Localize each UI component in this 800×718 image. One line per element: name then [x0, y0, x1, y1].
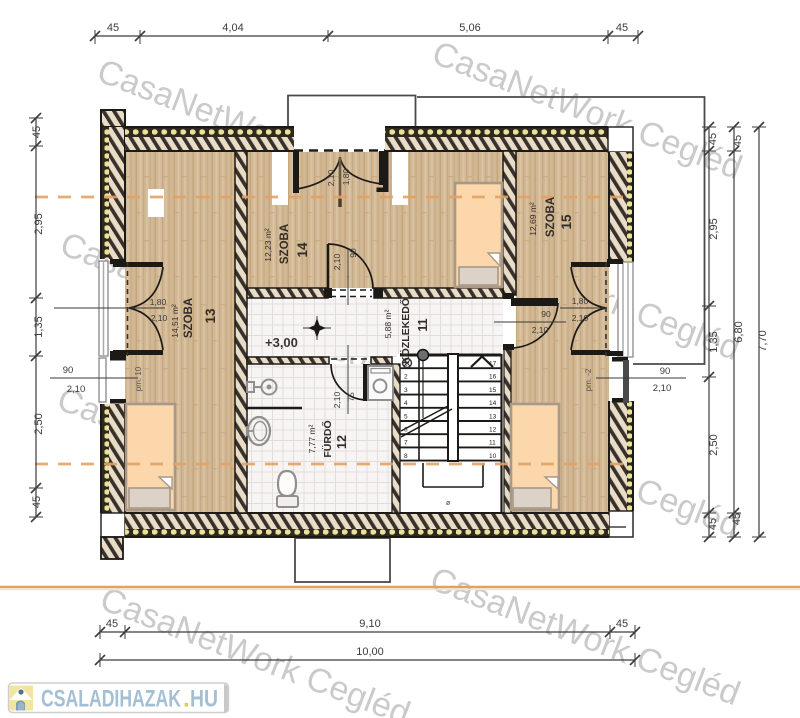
svg-text:2,50: 2,50	[708, 434, 720, 455]
svg-text:7: 7	[404, 440, 408, 447]
svg-text:2,95: 2,95	[708, 218, 720, 239]
svg-text:5,06: 5,06	[459, 22, 480, 34]
svg-text:5: 5	[404, 413, 408, 420]
svg-text:8: 8	[404, 453, 408, 460]
svg-text:2,10: 2,10	[332, 253, 342, 270]
svg-text:FÜRDŐ: FÜRDŐ	[321, 420, 334, 457]
svg-text:SZOBA: SZOBA	[545, 197, 557, 237]
svg-text:3: 3	[404, 387, 408, 394]
svg-text:45: 45	[732, 135, 744, 147]
svg-text:2,95: 2,95	[33, 213, 45, 234]
svg-text:1,80: 1,80	[150, 297, 167, 307]
svg-text:45: 45	[106, 618, 118, 630]
svg-text:7,77 m²: 7,77 m²	[307, 424, 317, 453]
svg-text:1,35: 1,35	[708, 331, 720, 352]
svg-text:KÖZLEKEDŐ: KÖZLEKEDŐ	[399, 298, 412, 364]
svg-text:4,04: 4,04	[222, 22, 243, 34]
svg-text:15: 15	[489, 387, 497, 394]
svg-text:45: 45	[31, 496, 43, 508]
svg-text:9,10: 9,10	[359, 618, 380, 630]
svg-text:90: 90	[541, 309, 551, 319]
svg-text:13: 13	[489, 413, 497, 420]
svg-text:45: 45	[707, 133, 719, 145]
svg-text:10,00: 10,00	[356, 646, 384, 658]
svg-text:12,69 m²: 12,69 m²	[528, 202, 538, 236]
svg-text:45: 45	[731, 513, 743, 525]
svg-text:90: 90	[660, 366, 671, 377]
svg-text:11: 11	[416, 318, 430, 331]
svg-text:14: 14	[489, 400, 497, 407]
svg-text:2,10: 2,10	[326, 169, 336, 186]
svg-text:2,10: 2,10	[653, 383, 672, 394]
svg-text:4: 4	[404, 400, 408, 407]
svg-text:12: 12	[489, 427, 497, 434]
svg-text:pm. 10: pm. 10	[134, 366, 143, 391]
svg-text:7,70: 7,70	[757, 330, 769, 351]
svg-text:75: 75	[346, 392, 356, 402]
svg-text:2,50: 2,50	[33, 413, 45, 434]
svg-text:45: 45	[107, 22, 119, 34]
svg-text:90: 90	[348, 248, 358, 258]
svg-text:5,88 m²: 5,88 m²	[383, 309, 393, 338]
svg-text:45: 45	[616, 618, 628, 630]
svg-text:ø: ø	[446, 500, 451, 507]
svg-text:HU: HU	[190, 686, 218, 713]
svg-text:1,80: 1,80	[572, 296, 589, 306]
svg-text:1,35: 1,35	[33, 316, 45, 337]
svg-text:45: 45	[616, 22, 628, 34]
svg-text:16: 16	[489, 374, 497, 381]
svg-text:.: .	[183, 686, 190, 713]
svg-text:+3,00: +3,00	[265, 335, 298, 350]
svg-text:6,80: 6,80	[733, 321, 745, 342]
svg-text:14: 14	[295, 242, 310, 258]
svg-text:13: 13	[203, 308, 218, 324]
svg-text:2: 2	[404, 374, 408, 381]
svg-text:12: 12	[335, 435, 349, 449]
svg-text:15: 15	[559, 214, 574, 230]
svg-text:2,10: 2,10	[332, 391, 342, 408]
svg-text:CSALADIHAZAK: CSALADIHAZAK	[41, 686, 181, 713]
svg-text:14,51 m²: 14,51 m²	[170, 304, 180, 338]
svg-text:SZOBA: SZOBA	[279, 224, 291, 264]
svg-text:SZOBA: SZOBA	[183, 298, 195, 338]
svg-text:2,10: 2,10	[532, 325, 549, 335]
svg-text:2,10: 2,10	[572, 313, 589, 323]
svg-text:2,10: 2,10	[151, 313, 168, 323]
svg-text:90: 90	[63, 365, 74, 376]
svg-text:11: 11	[489, 440, 496, 447]
svg-text:1,80: 1,80	[341, 168, 351, 185]
svg-text:10: 10	[489, 453, 497, 460]
svg-text:12,23 m²: 12,23 m²	[263, 228, 273, 262]
svg-text:17: 17	[489, 361, 497, 368]
svg-text:pm. -2: pm. -2	[584, 368, 593, 391]
svg-text:45: 45	[707, 518, 719, 530]
svg-text:45: 45	[31, 126, 43, 138]
svg-text:2,10: 2,10	[67, 384, 86, 395]
svg-text:6: 6	[404, 427, 408, 434]
